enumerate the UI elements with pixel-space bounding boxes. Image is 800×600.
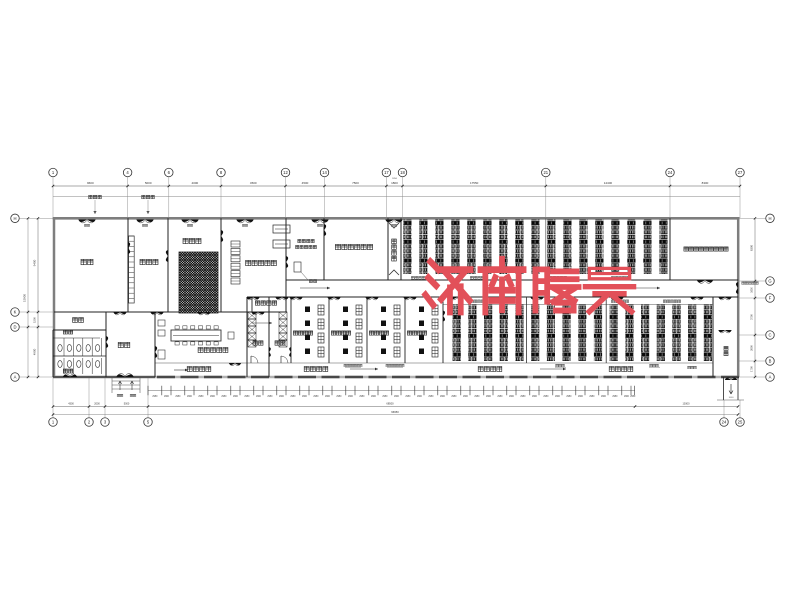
svg-text:2950: 2950 [630, 396, 636, 398]
svg-text:3700: 3700 [750, 314, 754, 320]
svg-text:2600: 2600 [750, 345, 754, 351]
svg-text:2950: 2950 [290, 396, 296, 398]
svg-text:D: D [13, 325, 16, 330]
svg-text:1800: 1800 [624, 396, 630, 398]
svg-text:K: K [14, 310, 17, 315]
svg-text:1800: 1800 [371, 396, 377, 398]
svg-text:2950: 2950 [497, 396, 503, 398]
svg-text:4300: 4300 [68, 402, 74, 405]
svg-text:2950: 2950 [359, 396, 365, 398]
svg-text:14400: 14400 [604, 181, 613, 185]
svg-text:A: A [769, 375, 772, 380]
svg-text:1800: 1800 [440, 396, 446, 398]
svg-text:1850: 1850 [392, 178, 398, 180]
svg-text:6300: 6300 [750, 245, 754, 251]
svg-text:4500: 4500 [302, 181, 309, 185]
svg-text:1800: 1800 [256, 396, 262, 398]
svg-text:9400: 9400 [33, 259, 37, 266]
svg-text:14: 14 [322, 170, 327, 175]
svg-text:68500: 68500 [386, 401, 394, 405]
svg-text:2950: 2950 [566, 396, 572, 398]
svg-text:1800: 1800 [394, 396, 400, 398]
svg-text:H: H [768, 216, 771, 221]
svg-text:2000: 2000 [94, 402, 100, 405]
svg-text:2950: 2950 [405, 396, 411, 398]
svg-text:1500: 1500 [33, 317, 37, 323]
svg-text:1800: 1800 [555, 396, 561, 398]
svg-text:B: B [769, 359, 772, 364]
svg-text:5000: 5000 [124, 402, 130, 405]
svg-text:10300: 10300 [683, 402, 691, 405]
svg-text:G: G [768, 279, 771, 284]
svg-text:9600: 9600 [87, 181, 94, 185]
svg-text:1800: 1800 [601, 396, 607, 398]
svg-text:2950: 2950 [612, 396, 618, 398]
svg-text:5000: 5000 [145, 181, 152, 185]
svg-text:A: A [14, 375, 17, 380]
svg-text:1800: 1800 [325, 396, 331, 398]
svg-text:1800: 1800 [391, 181, 398, 185]
svg-text:2950: 2950 [382, 396, 388, 398]
svg-text:1800: 1800 [532, 396, 538, 398]
svg-text:2950: 2950 [520, 396, 526, 398]
svg-text:2950: 2950 [428, 396, 434, 398]
svg-text:17550: 17550 [470, 181, 479, 185]
svg-text:2950: 2950 [474, 396, 480, 398]
svg-text:2950: 2950 [244, 396, 250, 398]
svg-text:H: H [13, 216, 16, 221]
svg-text:7500: 7500 [352, 181, 359, 185]
svg-text:12: 12 [283, 170, 288, 175]
svg-text:24: 24 [668, 170, 673, 175]
svg-text:25: 25 [738, 420, 743, 425]
svg-text:96950: 96950 [391, 410, 399, 414]
svg-text:C: C [768, 333, 771, 338]
svg-text:F: F [769, 296, 772, 301]
svg-text:1000: 1000 [729, 397, 735, 399]
svg-text:1800: 1800 [187, 396, 193, 398]
svg-text:1700: 1700 [750, 366, 754, 372]
svg-text:1800: 1800 [348, 396, 354, 398]
svg-text:1800: 1800 [417, 396, 423, 398]
svg-text:15900: 15900 [23, 294, 27, 302]
svg-text:24: 24 [722, 420, 727, 425]
svg-text:1800: 1800 [164, 396, 170, 398]
svg-text:21: 21 [543, 170, 548, 175]
svg-text:1800: 1800 [210, 396, 216, 398]
svg-text:2950: 2950 [543, 396, 549, 398]
svg-text:1800: 1800 [578, 396, 584, 398]
svg-text:4500: 4500 [250, 181, 257, 185]
svg-text:1800: 1800 [279, 396, 285, 398]
svg-text:2950: 2950 [589, 396, 595, 398]
svg-text:1800: 1800 [463, 396, 469, 398]
svg-text:2950: 2950 [313, 396, 319, 398]
svg-text:2950: 2950 [175, 396, 181, 398]
svg-text:2950: 2950 [267, 396, 273, 398]
svg-text:1800: 1800 [302, 396, 308, 398]
svg-text:2950: 2950 [336, 396, 342, 398]
svg-text:17: 17 [384, 170, 389, 175]
svg-text:1800: 1800 [509, 396, 515, 398]
svg-text:8300: 8300 [702, 181, 709, 185]
svg-text:2950: 2950 [198, 396, 204, 398]
svg-text:2950: 2950 [451, 396, 457, 398]
svg-text:27: 27 [738, 170, 743, 175]
svg-text:2950: 2950 [221, 396, 227, 398]
svg-text:1800: 1800 [486, 396, 492, 398]
svg-text:1800: 1800 [233, 396, 239, 398]
svg-text:4900: 4900 [33, 348, 37, 355]
svg-text:4000: 4000 [192, 181, 199, 185]
svg-text:2950: 2950 [152, 396, 158, 398]
svg-text:1650: 1650 [751, 287, 754, 293]
svg-text:18: 18 [400, 170, 405, 175]
